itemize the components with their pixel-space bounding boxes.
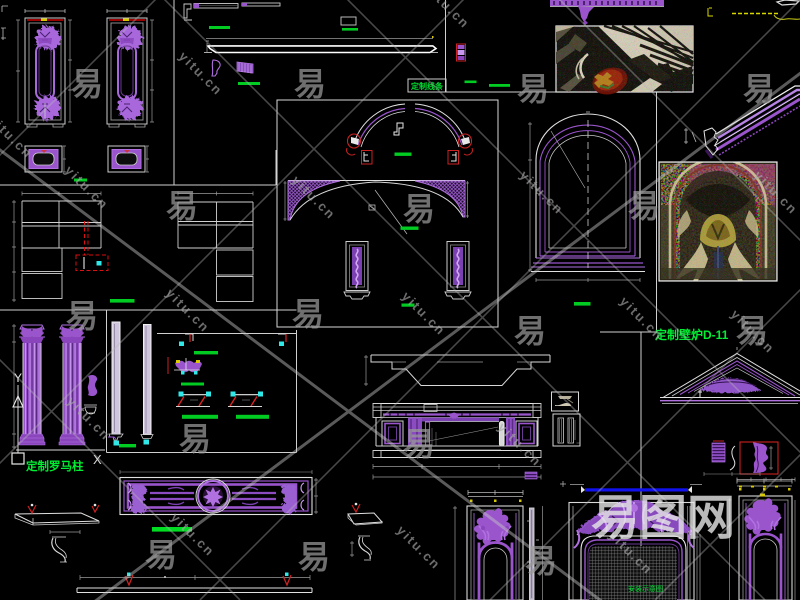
svg-text:易: 易	[525, 543, 557, 579]
svg-text:易: 易	[628, 188, 660, 224]
svg-text:易: 易	[298, 539, 330, 575]
svg-text:易图网: 易图网	[591, 492, 735, 545]
svg-text:易: 易	[292, 296, 324, 332]
svg-text:易: 易	[403, 426, 435, 462]
svg-text:易: 易	[403, 191, 435, 227]
svg-text:定制壁炉D-11: 定制壁炉D-11	[655, 327, 729, 342]
svg-text:易: 易	[145, 537, 177, 573]
svg-text:易: 易	[179, 421, 211, 457]
svg-text:定制罗马柱: 定制罗马柱	[26, 459, 84, 473]
svg-text:易: 易	[294, 66, 326, 102]
svg-text:易: 易	[514, 313, 546, 349]
svg-text:定制线条: 定制线条	[410, 81, 444, 91]
svg-text:易: 易	[66, 298, 98, 334]
svg-text:易: 易	[71, 66, 103, 102]
svg-text:安装示意图: 安装示意图	[628, 584, 663, 593]
svg-text:易: 易	[166, 188, 198, 224]
svg-text:易: 易	[517, 71, 549, 107]
svg-text:易: 易	[743, 71, 775, 107]
